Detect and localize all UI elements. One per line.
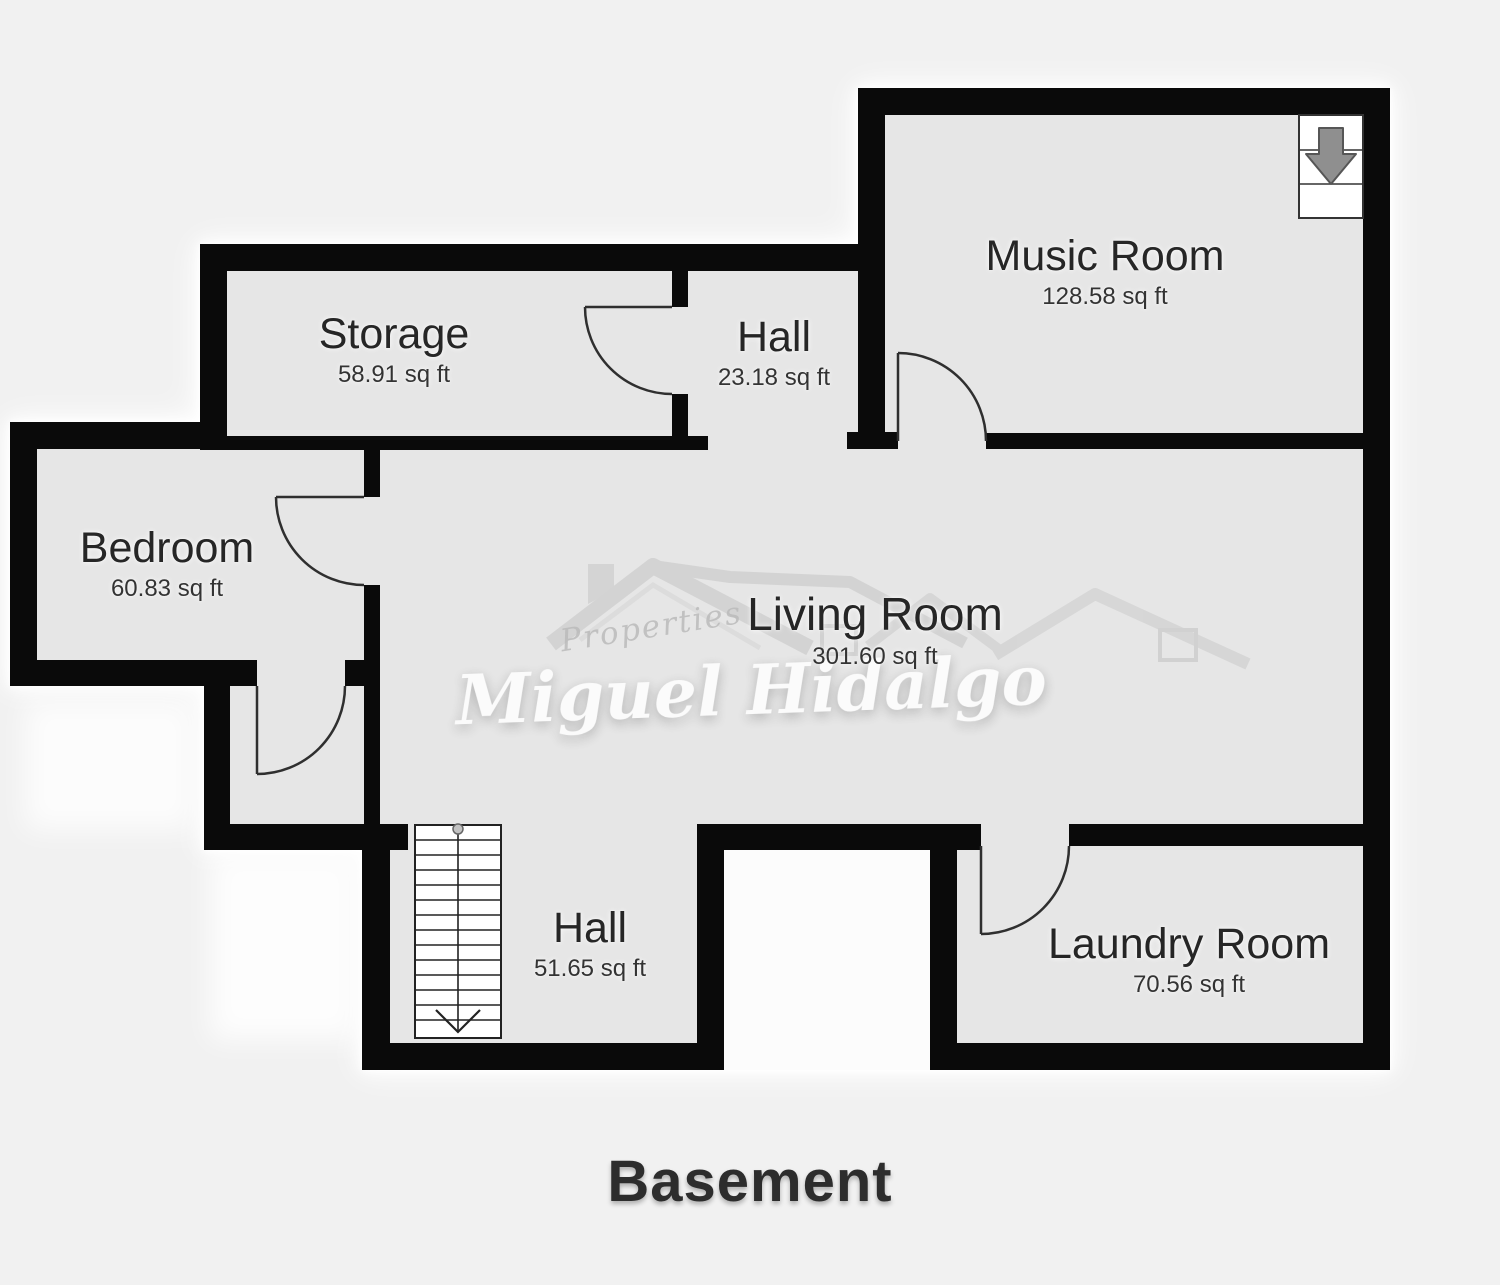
room-area: 128.58 sq ft	[986, 284, 1225, 310]
wall	[362, 824, 390, 1070]
room-label-bedroom: Bedroom 60.83 sq ft	[80, 524, 254, 603]
room-name: Music Room	[986, 232, 1225, 281]
exterior-notch	[724, 850, 930, 1070]
room-area: 70.56 sq ft	[1048, 972, 1330, 998]
room-label-hall-lower: Hall 51.65 sq ft	[534, 904, 646, 983]
room-area: 23.18 sq ft	[718, 365, 830, 391]
wall	[10, 422, 37, 686]
wall	[672, 271, 688, 307]
wall	[10, 660, 257, 686]
room-name: Hall	[534, 904, 646, 953]
wall	[200, 244, 227, 450]
staircase-icon	[415, 824, 501, 1038]
room-name: Storage	[319, 310, 470, 359]
room-label-living-room: Living Room 301.60 sq ft	[747, 588, 1003, 670]
wall	[10, 422, 227, 449]
wall	[986, 433, 1390, 449]
wall	[200, 436, 708, 450]
floor-title: Basement	[607, 1148, 892, 1215]
room-name: Laundry Room	[1048, 920, 1330, 969]
room-label-storage: Storage 58.91 sq ft	[319, 310, 470, 389]
wall	[672, 394, 688, 450]
wall	[858, 88, 1390, 115]
room-area: 58.91 sq ft	[319, 362, 470, 388]
wall	[847, 432, 898, 449]
wall	[858, 88, 885, 449]
room-label-music-room: Music Room 128.58 sq ft	[986, 232, 1225, 311]
wall	[364, 585, 380, 850]
stairs-down-arrow-icon	[1299, 115, 1363, 218]
wall	[362, 1043, 724, 1070]
wall	[930, 1043, 1390, 1070]
room-area: 51.65 sq ft	[534, 956, 646, 982]
wall	[1363, 88, 1390, 1070]
wall	[345, 660, 380, 686]
wall	[200, 244, 884, 271]
room-name: Hall	[718, 313, 830, 362]
room-area: 301.60 sq ft	[747, 644, 1003, 670]
wall	[364, 436, 380, 497]
room-area: 60.83 sq ft	[80, 576, 254, 602]
wall	[1069, 824, 1390, 846]
stair-start-knob	[453, 824, 463, 834]
room-label-hall-upper: Hall 23.18 sq ft	[718, 313, 830, 392]
room-name: Living Room	[747, 588, 1003, 641]
room-name: Bedroom	[80, 524, 254, 573]
wall	[930, 824, 957, 1070]
room-label-laundry-room: Laundry Room 70.56 sq ft	[1048, 920, 1330, 999]
floorplan-canvas: Properties Miguel Hidalgo Music Room 128…	[0, 0, 1500, 1285]
wall	[697, 824, 724, 1070]
